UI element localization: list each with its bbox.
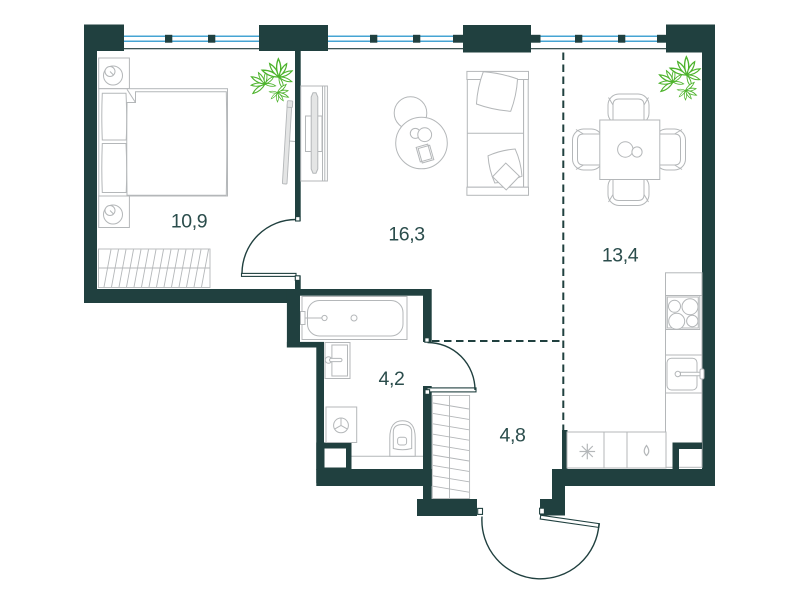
svg-text:13,4: 13,4 [602,245,639,267]
svg-text:10,9: 10,9 [171,211,207,233]
svg-text:4,8: 4,8 [500,425,526,447]
svg-text:4,2: 4,2 [379,368,405,390]
svg-text:16,3: 16,3 [388,224,424,246]
